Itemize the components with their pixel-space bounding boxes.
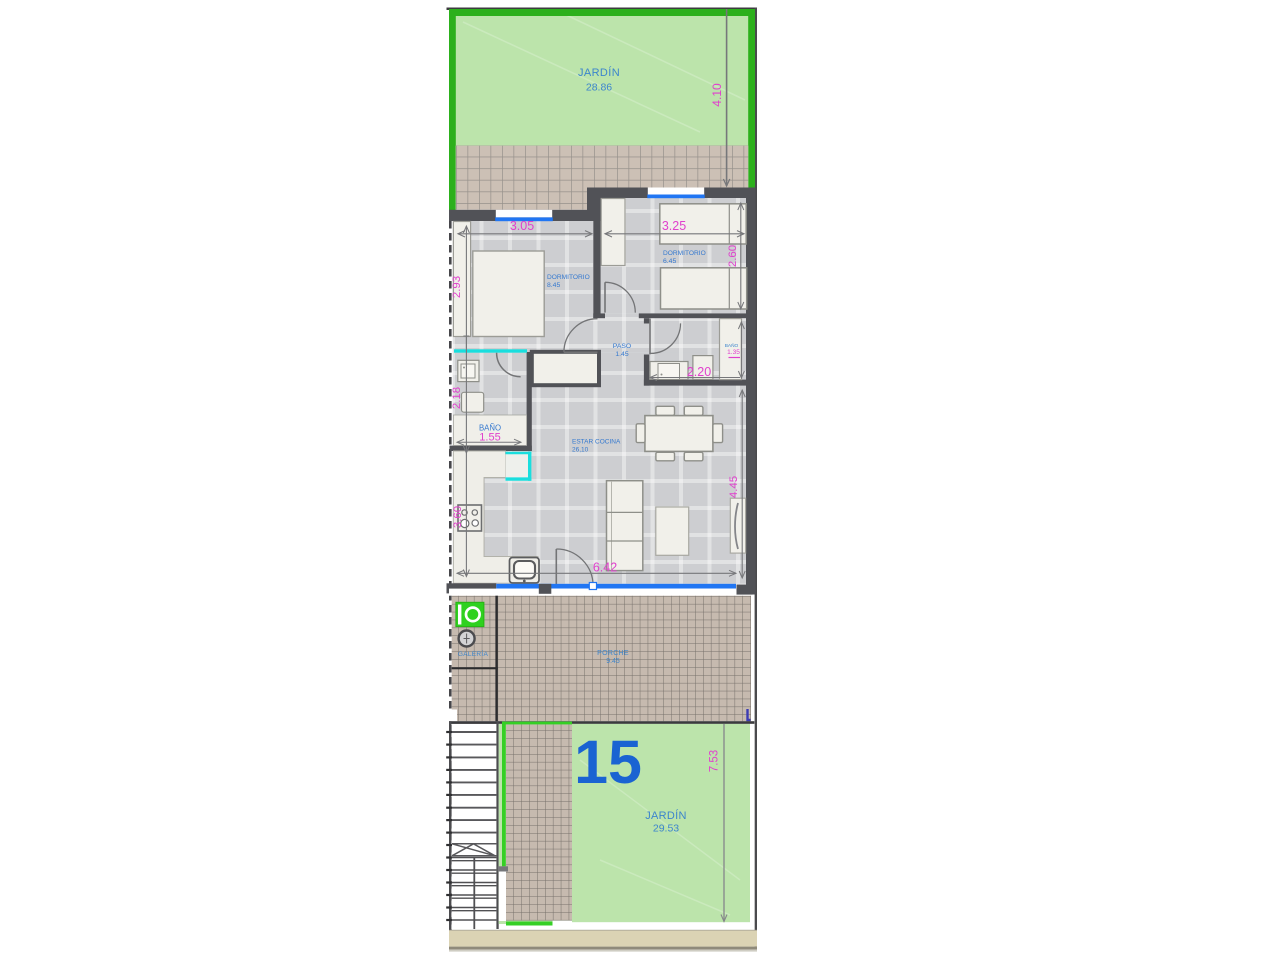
svg-text:4.45: 4.45: [728, 476, 740, 498]
svg-text:ESTAR COCINA: ESTAR COCINA: [572, 439, 621, 446]
svg-text:2.20: 2.20: [687, 365, 711, 379]
svg-text:29.53: 29.53: [653, 823, 679, 835]
svg-text:GALERÍA: GALERÍA: [458, 649, 489, 658]
svg-text:PASO: PASO: [613, 343, 631, 350]
svg-text:DORMITORIO: DORMITORIO: [547, 274, 590, 281]
svg-text:3.60: 3.60: [452, 506, 464, 528]
svg-text:3.05: 3.05: [510, 219, 534, 233]
svg-text:BAÑO: BAÑO: [725, 342, 739, 349]
svg-text:6.42: 6.42: [593, 561, 617, 575]
svg-text:2.18: 2.18: [451, 387, 463, 409]
svg-text:2.60: 2.60: [727, 245, 739, 267]
svg-text:28.86: 28.86: [586, 82, 612, 94]
svg-text:2.93: 2.93: [451, 276, 463, 298]
svg-text:JARDÍN: JARDÍN: [645, 809, 687, 822]
svg-text:9.45: 9.45: [606, 658, 620, 665]
svg-text:26,10: 26,10: [572, 447, 589, 454]
svg-text:PORCHE: PORCHE: [597, 650, 629, 657]
svg-text:15: 15: [574, 728, 642, 796]
svg-text:7.53: 7.53: [709, 750, 721, 772]
svg-text:DORMITORIO: DORMITORIO: [663, 250, 706, 257]
svg-text:1.35: 1.35: [727, 349, 740, 356]
svg-text:1.45: 1.45: [615, 351, 628, 358]
svg-text:3.25: 3.25: [662, 219, 686, 233]
svg-text:4.10: 4.10: [710, 83, 724, 107]
svg-text:JARDÍN: JARDÍN: [578, 66, 620, 79]
svg-text:1.55: 1.55: [479, 432, 500, 444]
svg-text:6.45: 6.45: [663, 258, 676, 265]
svg-text:8.45: 8.45: [547, 282, 560, 289]
